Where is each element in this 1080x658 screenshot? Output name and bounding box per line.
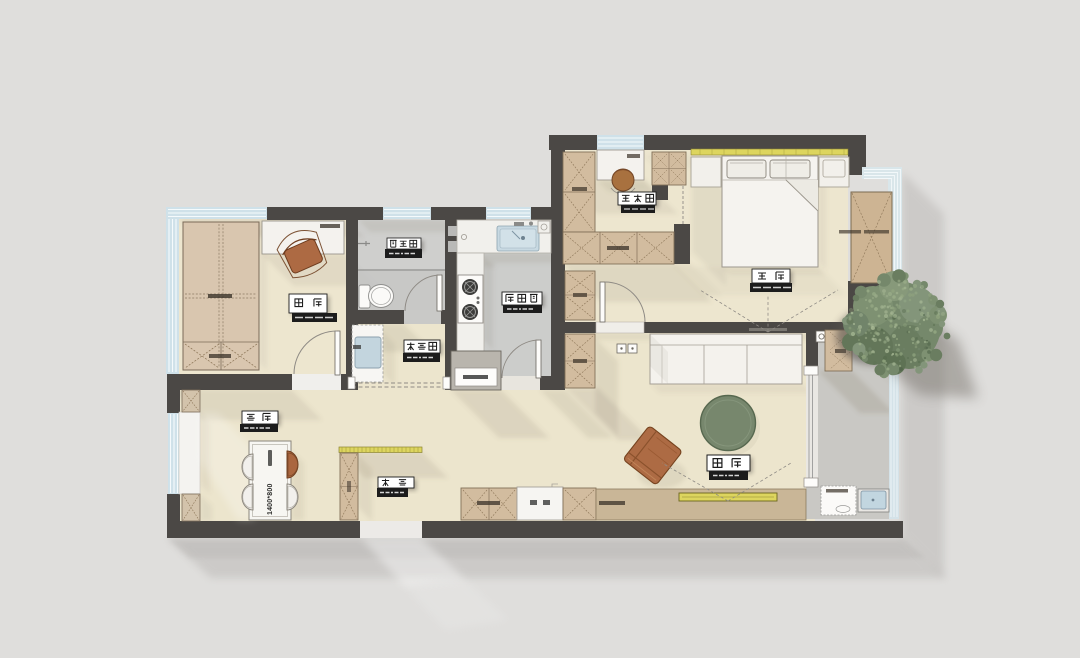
svg-text:1400*800: 1400*800 xyxy=(267,483,274,515)
